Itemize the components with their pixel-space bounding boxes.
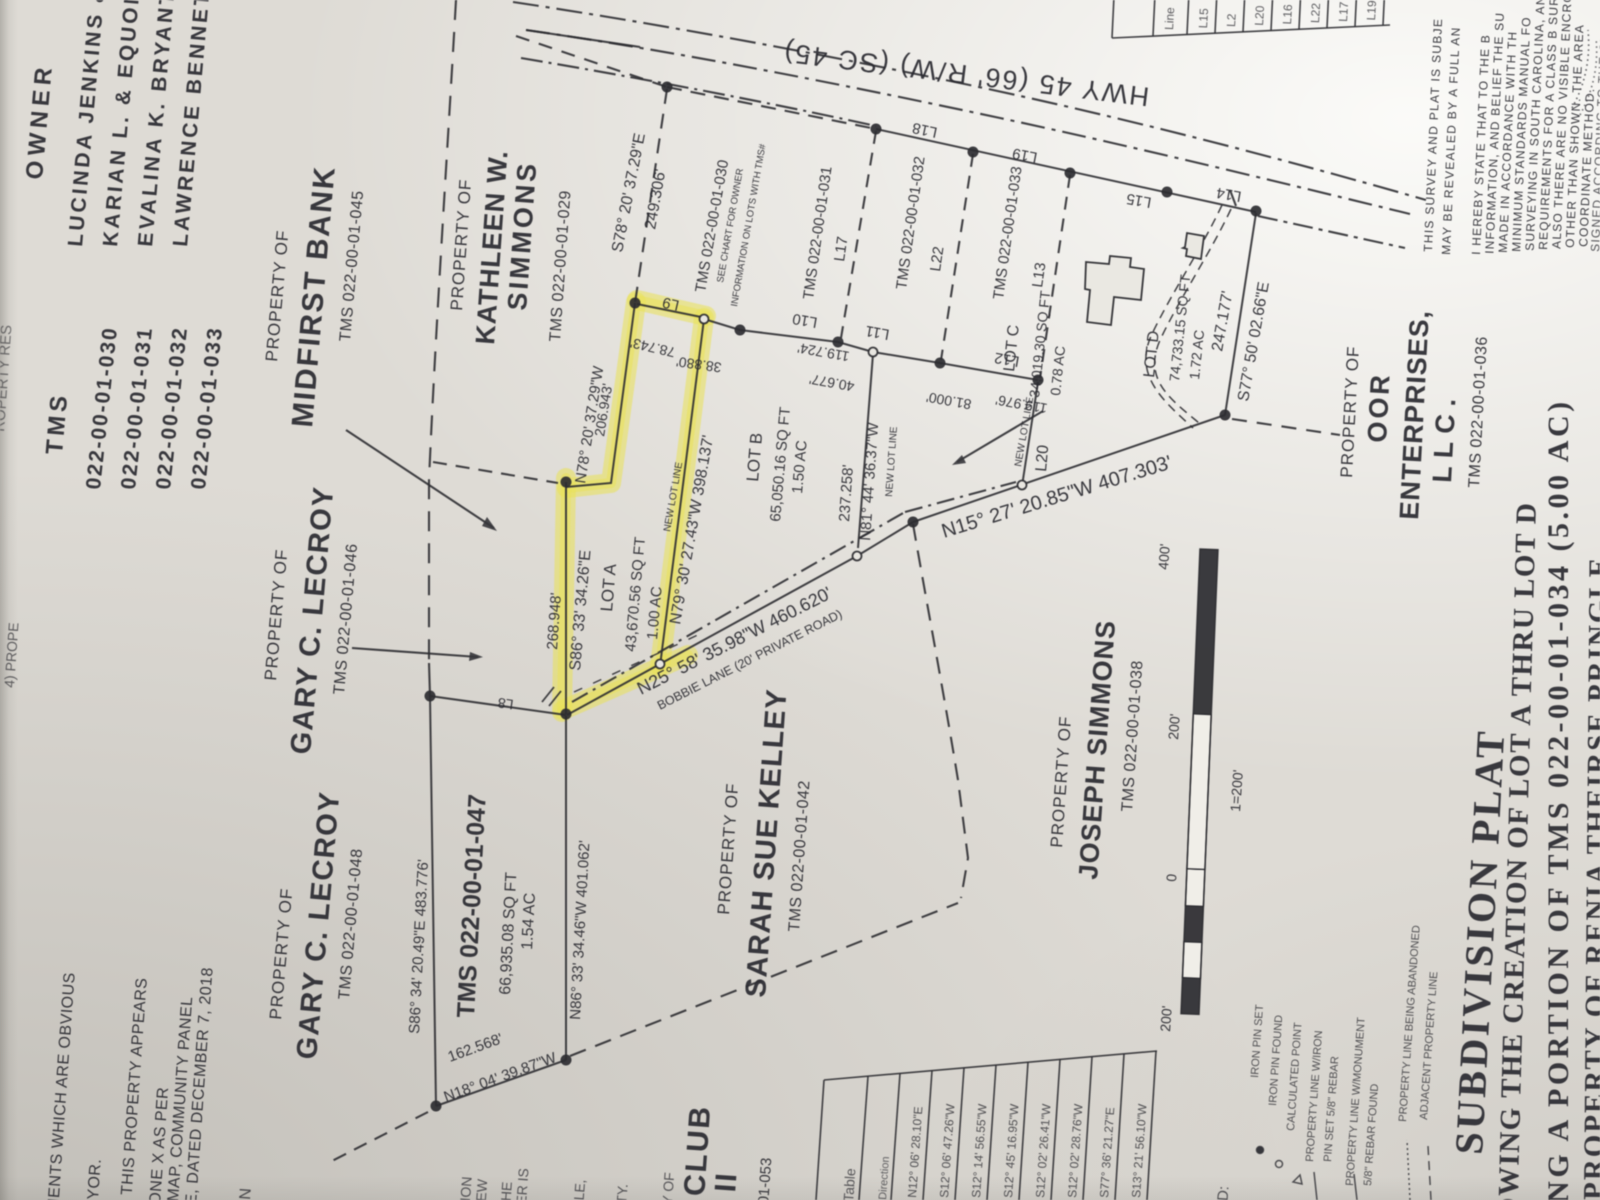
svg-text:LOT B: LOT B <box>743 432 766 482</box>
svg-text:S77° 36' 21.27"E: S77° 36' 21.27"E <box>1097 1107 1117 1199</box>
svg-text:MENTS WHICH ARE OBVIOUS: MENTS WHICH ARE OBVIOUS <box>45 972 79 1200</box>
svg-text:TMS 022-00-01-047: TMS 022-00-01-047 <box>452 793 492 1018</box>
svg-text:N86° 33' 34.46"W 401.062': N86° 33' 34.46"W 401.062' <box>567 840 593 1020</box>
svg-text:L17: L17 <box>1336 1 1351 22</box>
svg-text:LAWRENCE BENNETT &: LAWRENCE BENNETT & <box>169 0 218 247</box>
svg-text:OOR: OOR <box>1362 371 1396 443</box>
svg-text:PROPERTY OF: PROPERTY OF <box>262 229 292 362</box>
svg-text:L19: L19 <box>1011 144 1039 165</box>
svg-text:0: 0 <box>1163 873 1180 882</box>
svg-text:PROPERTY OF RENIA THEIRSE PRIN: PROPERTY OF RENIA THEIRSE PRINGLE <box>1578 556 1600 1200</box>
svg-text:SARAH SUE KELLEY: SARAH SUE KELLEY <box>740 688 793 999</box>
svg-text:S12° 02' 28.76"W: S12° 02' 28.76"W <box>1065 1103 1086 1198</box>
svg-text:L22: L22 <box>1308 2 1323 23</box>
svg-text:PROPERTY OF: PROPERTY OF <box>1337 345 1363 478</box>
svg-text:TMS 022-00-01-045: TMS 022-00-01-045 <box>337 190 367 343</box>
svg-text:S12° 06' 47.26"W: S12° 06' 47.26"W <box>937 1103 958 1198</box>
svg-text:022-00-01-030: 022-00-01-030 <box>82 325 122 490</box>
svg-text:CALCULATED POINT: CALCULATED POINT <box>1285 1022 1305 1131</box>
svg-text:PROPERTY OF: PROPERTY OF <box>261 548 291 681</box>
svg-text:IRON PIN FOUND: IRON PIN FOUND <box>1267 1014 1285 1106</box>
svg-text:PIN SET 5/8" REBAR: PIN SET 5/8" REBAR <box>1322 1056 1341 1162</box>
svg-text:1.54 AC: 1.54 AC <box>519 892 539 950</box>
svg-text:81.000': 81.000' <box>925 389 973 413</box>
svg-text:. THIS PROPERTY APPEARS: . THIS PROPERTY APPEARS <box>118 977 151 1200</box>
svg-text:40.677': 40.677' <box>808 371 856 395</box>
svg-text:L16: L16 <box>1280 4 1295 25</box>
svg-text:N15° 27' 20.85"W 407.303': N15° 27' 20.85"W 407.303' <box>939 452 1175 543</box>
svg-text:S12° 45' 16.95"W: S12° 45' 16.95"W <box>1001 1103 1022 1198</box>
svg-text:TMS 022-00-01-038: TMS 022-00-01-038 <box>1119 660 1147 813</box>
svg-text:S12° 14' 56.55"W: S12° 14' 56.55"W <box>969 1103 990 1198</box>
svg-text:38.880': 38.880' <box>675 354 722 376</box>
svg-text:5/8" REBAR FOUND: 5/8" REBAR FOUND <box>1362 1083 1381 1186</box>
svg-text:N12° 06' 28.10"E: N12° 06' 28.10"E <box>905 1106 925 1198</box>
svg-text:L15: L15 <box>1125 190 1153 211</box>
svg-text:S13° 21' 56.10"W: S13° 21' 56.10"W <box>1129 1103 1150 1198</box>
svg-text:L14: L14 <box>1215 184 1243 205</box>
svg-text:PROPERTY OF: PROPERTY OF <box>1047 715 1075 848</box>
svg-text:YOR.: YOR. <box>85 1158 105 1200</box>
svg-text:200': 200' <box>1165 713 1183 740</box>
svg-text:GARY C. LECROY: GARY C. LECROY <box>285 485 340 756</box>
svg-text:022-00-01-031: 022-00-01-031 <box>117 325 157 490</box>
svg-text:LOT A: LOT A <box>597 562 620 612</box>
svg-text:249.306': 249.306' <box>642 168 669 231</box>
svg-text:S77° 50' 02.66"E: S77° 50' 02.66"E <box>1235 281 1273 403</box>
svg-text:TMS 022-00-01-033: TMS 022-00-01-033 <box>990 165 1026 300</box>
svg-text:L13: L13 <box>1029 261 1049 288</box>
svg-text:IRON PIN SET: IRON PIN SET <box>1249 1004 1266 1078</box>
svg-text:200': 200' <box>1157 1005 1175 1032</box>
svg-text:0.78 AC: 0.78 AC <box>1047 345 1068 396</box>
svg-text:L22: L22 <box>927 245 947 272</box>
svg-text:L11: L11 <box>864 322 891 343</box>
svg-text:022-00-01-033: 022-00-01-033 <box>187 325 227 490</box>
svg-text:PROPERTY LINE W/IRON: PROPERTY LINE W/IRON <box>1304 1030 1325 1162</box>
svg-text:TMS 022-00-01-036: TMS 022-00-01-036 <box>1466 336 1491 488</box>
svg-text:JOSEPH SIMMONS: JOSEPH SIMMONS <box>1073 619 1121 881</box>
svg-text:ISION: ISION <box>456 1176 475 1200</box>
svg-text:LOT D: LOT D <box>1141 330 1163 378</box>
svg-text:TMS 022-00-01-048: TMS 022-00-01-048 <box>336 848 366 1001</box>
svg-text:PROPERTY OF: PROPERTY OF <box>447 178 475 311</box>
svg-text:TMS 022-00-01-029: TMS 022-00-01-029 <box>547 190 575 343</box>
svg-text:ENTERPRISES,: ENTERPRISES, <box>1394 309 1435 520</box>
svg-text:HWY 45 (66' R/W) (SC 45): HWY 45 (66' R/W) (SC 45) <box>781 37 1151 112</box>
svg-text:TMS 022-00-01-053: TMS 022-00-01-053 <box>749 1157 775 1200</box>
svg-text:TMS: TMS <box>41 391 73 456</box>
svg-text:GARY C. LECROY: GARY C. LECROY <box>291 790 346 1061</box>
svg-text:022-00-01-032: 022-00-01-032 <box>152 325 192 490</box>
svg-text:ADJACENT PROPERTY LINE: ADJACENT PROPERTY LINE <box>1418 971 1440 1120</box>
svg-text:ER IS: ER IS <box>513 1168 532 1200</box>
svg-text:BLE,: BLE, <box>570 1179 588 1200</box>
svg-text:TMS 022-00-01-046: TMS 022-00-01-046 <box>331 543 361 696</box>
svg-text:S12° 02' 26.41"W: S12° 02' 26.41"W <box>1033 1103 1054 1198</box>
svg-text:247.177': 247.177' <box>1209 290 1236 353</box>
svg-text:MIDFIRST BANK: MIDFIRST BANK <box>286 164 342 429</box>
svg-text:PROPERTY OF: PROPERTY OF <box>714 782 742 915</box>
svg-text:PROPERTY LINE BEING ABANDONED: PROPERTY LINE BEING ABANDONED <box>1397 925 1423 1122</box>
svg-text:L19: L19 <box>1364 0 1379 21</box>
svg-text:Line: Line <box>1162 7 1177 31</box>
svg-text:N: N <box>237 1188 255 1200</box>
svg-text:LLC.: LLC. <box>1427 390 1462 483</box>
svg-text:TMS 022-00-01-042: TMS 022-00-01-042 <box>786 780 814 933</box>
svg-text:65,050.16 SQ FT: 65,050.16 SQ FT <box>767 406 794 522</box>
svg-text:ROPERTY RES: ROPERTY RES <box>0 324 15 432</box>
svg-text:LOT C: LOT C <box>1001 324 1023 372</box>
svg-text:L20: L20 <box>1252 5 1267 26</box>
svg-text:L10: L10 <box>791 310 819 331</box>
svg-text:LEGEND:: LEGEND: <box>1211 1185 1233 1200</box>
svg-text:L20: L20 <box>1033 444 1052 472</box>
svg-text:OWNER: OWNER <box>21 62 58 181</box>
svg-text:N81° 44' 36.37"W: N81° 44' 36.37"W <box>857 421 882 541</box>
svg-text:4) PROPE: 4) PROPE <box>1 622 22 688</box>
svg-text:1.50 AC: 1.50 AC <box>789 440 811 495</box>
svg-text:Y OF: Y OF <box>659 1172 677 1200</box>
svg-text:ING A PORTION OF TMS 022-00-01: ING A PORTION OF TMS 022-00-01-034 (5.00… <box>1542 398 1575 1200</box>
svg-text:162.568': 162.568' <box>446 1030 506 1066</box>
svg-text:Direction: Direction <box>877 1156 892 1200</box>
svg-text:1.72 AC: 1.72 AC <box>1186 329 1207 380</box>
svg-text:TMS 022-00-01-031: TMS 022-00-01-031 <box>800 165 836 300</box>
svg-text:NO II: NO II <box>705 1170 744 1200</box>
svg-text:66,935.08 SQ FT: 66,935.08 SQ FT <box>497 872 520 996</box>
svg-text:400': 400' <box>1155 543 1173 570</box>
svg-text:NEW LOT LINE: NEW LOT LINE <box>884 426 900 497</box>
svg-text:ITY.: ITY. <box>613 1183 631 1200</box>
svg-text:S86° 34' 20.49"E 483.776': S86° 34' 20.49"E 483.776' <box>406 859 432 1034</box>
svg-text:237.258': 237.258' <box>836 464 857 522</box>
svg-text:PROPERTY OF: PROPERTY OF <box>266 887 296 1020</box>
svg-text:L2: L2 <box>1224 13 1239 27</box>
svg-text:L15: L15 <box>1196 8 1211 29</box>
svg-text:TMS 022-00-01-032: TMS 022-00-01-032 <box>893 155 929 290</box>
svg-text:1=200': 1=200' <box>1227 769 1246 812</box>
svg-text:NEW: NEW <box>472 1178 490 1200</box>
svg-text:Line Table: Line Table <box>838 1167 858 1200</box>
svg-text:THE: THE <box>497 1181 515 1200</box>
svg-text:L8: L8 <box>497 695 515 713</box>
svg-text:S78° 20' 37.29"E: S78° 20' 37.29"E <box>609 132 649 254</box>
svg-text:L17: L17 <box>831 235 851 262</box>
